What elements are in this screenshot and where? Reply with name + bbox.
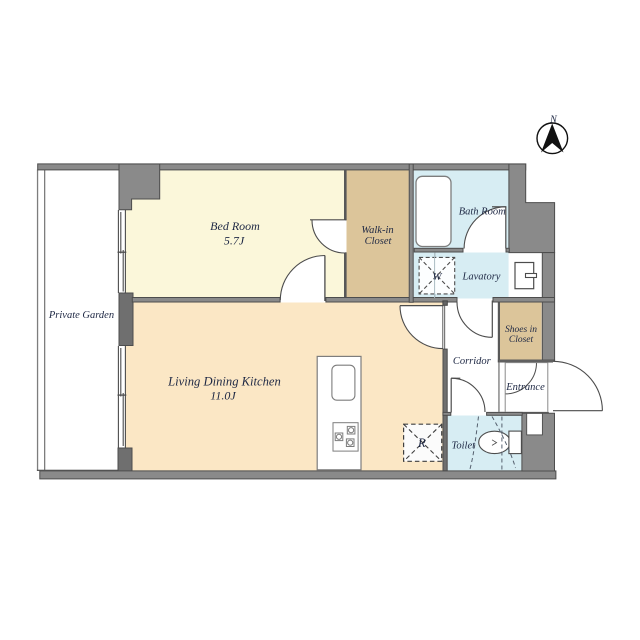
svg-text:Walk-in: Walk-in	[361, 225, 393, 236]
svg-text:Entrance: Entrance	[505, 382, 545, 393]
svg-text:Closet: Closet	[365, 236, 393, 247]
svg-text:11.0J: 11.0J	[210, 388, 236, 402]
svg-text:5.7J: 5.7J	[224, 233, 245, 247]
svg-text:Lavatory: Lavatory	[462, 272, 501, 283]
svg-text:N: N	[549, 115, 558, 126]
svg-text:R: R	[417, 436, 426, 450]
svg-text:Corridor: Corridor	[453, 356, 492, 367]
svg-text:Private Garden: Private Garden	[48, 310, 114, 321]
svg-text:Closet: Closet	[509, 335, 534, 345]
svg-text:Bed Room: Bed Room	[210, 219, 260, 233]
svg-text:Shoes in: Shoes in	[505, 325, 537, 335]
svg-text:W: W	[432, 271, 442, 283]
svg-text:Bath Room: Bath Room	[459, 207, 506, 218]
svg-text:Toilet: Toilet	[452, 441, 477, 452]
svg-text:Living Dining Kitchen: Living Dining Kitchen	[167, 375, 281, 389]
